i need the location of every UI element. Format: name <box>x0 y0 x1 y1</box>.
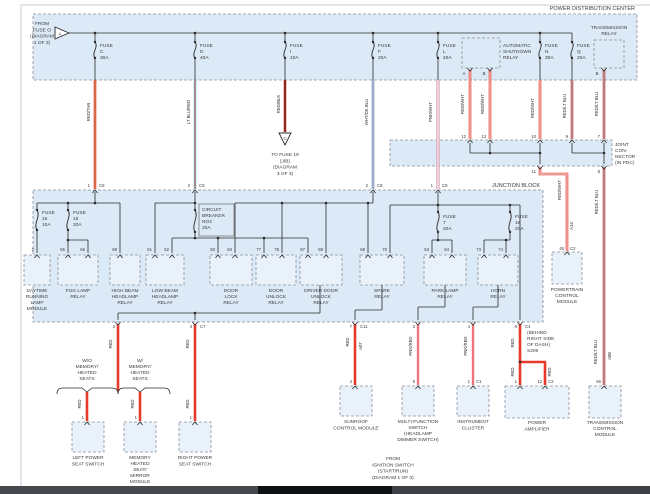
junction-dot <box>505 239 508 242</box>
junction-dot <box>194 237 197 240</box>
junction-dot <box>94 32 97 35</box>
ref-a-letter: A <box>59 32 62 37</box>
jb-exit-conn-c4: C4 <box>525 324 531 329</box>
door-lock-relay-box <box>210 255 252 285</box>
junction-block-title: JUNCTION BLOCK <box>492 183 540 189</box>
wire-color-label: RED <box>130 399 135 408</box>
transmission-control-module-box <box>589 386 621 418</box>
trans-relay-pin-b: B <box>596 71 599 76</box>
junction-dot <box>437 239 440 242</box>
wire-color-label: WHT/DK BLU <box>364 99 369 126</box>
wire-color-label: RED/LT BLU <box>593 340 598 364</box>
jb-conn-c8c: C8 <box>442 183 448 188</box>
memory-heated-seat-mirror-module-box <box>124 422 156 452</box>
transmission-relay-box <box>594 40 624 68</box>
sunroof-control-module-box <box>340 386 372 416</box>
pin-46-pcm: 46 <box>559 246 564 251</box>
pin-56-tcm: 56 <box>596 379 601 384</box>
wire-color-label: RED <box>185 399 190 408</box>
wire-color-label: PNK/WHT <box>428 102 433 122</box>
wire-color-label: RED/LT BLU <box>594 92 599 116</box>
junction-dot <box>539 152 542 155</box>
bottom-bar <box>0 486 258 494</box>
wiring-diagram: POWER DISTRIBUTION CENTERFROMFUSE O(DIAG… <box>0 0 650 494</box>
wire-color-label: LT BLU/RED <box>186 100 191 124</box>
horn-relay-box <box>478 255 518 285</box>
jb-conn-c8: C8 <box>99 183 105 188</box>
pin-69: 69 <box>360 247 365 252</box>
jc-pin-10: 10 <box>531 134 536 139</box>
automatic-shutdown-relay-box <box>462 38 500 68</box>
bottom-bar <box>258 486 392 494</box>
wire-color-label: A07 <box>358 342 363 350</box>
right-power-seat-switch-box <box>179 422 211 452</box>
junction-dot <box>194 312 197 315</box>
door-lock-relay-label: DOORLOCKRELAY <box>223 288 239 306</box>
jc-pin-13: 13 <box>481 134 486 139</box>
junction-dot <box>372 32 375 35</box>
pin-88: 88 <box>318 247 323 252</box>
conn-c1-ic: C1 <box>476 379 482 384</box>
junction-dot <box>437 32 440 35</box>
junction-dot <box>67 202 70 205</box>
pin-83: 83 <box>210 247 215 252</box>
junction-dot <box>217 237 220 240</box>
junction-dot <box>194 32 197 35</box>
pin-87: 87 <box>300 247 305 252</box>
wire-color-label: RED/BLK <box>276 95 281 114</box>
pin-78: 78 <box>274 247 279 252</box>
spare-relay-box <box>360 255 404 285</box>
wire-color-label: RED <box>108 339 113 348</box>
wire-color-label: A14 <box>569 222 574 230</box>
jb-conn-c8b: C8 <box>377 183 383 188</box>
pin-61: 61 <box>147 247 152 252</box>
bottom-bar <box>392 486 650 494</box>
junction-dot <box>367 202 370 205</box>
pin-53: 53 <box>424 247 429 252</box>
jc-pin-12: 12 <box>461 134 466 139</box>
door-unlock-relay-box <box>256 255 296 285</box>
wire-color-label: RED <box>185 339 190 348</box>
low-beam-headlamp-relay-box <box>146 255 184 285</box>
wire-color-label: A08 <box>607 352 612 360</box>
junction-dot <box>325 202 328 205</box>
driver-door-unlock-relay-box <box>300 255 342 285</box>
diagram-canvas: POWER DISTRIBUTION CENTERFROMFUSE O(DIAG… <box>0 0 650 494</box>
junction-dot <box>509 204 512 207</box>
junction-dot <box>539 32 542 35</box>
fog-lamp-relay-box <box>58 255 98 285</box>
pin-77: 77 <box>256 247 261 252</box>
pin-62: 62 <box>164 247 169 252</box>
pin-70: 70 <box>382 247 387 252</box>
wire-color-label: RED/WHT <box>480 94 485 114</box>
pin-73: 73 <box>476 247 481 252</box>
pin-68: 68 <box>112 247 117 252</box>
pdc-title: POWER DISTRIBUTION CENTER <box>550 6 635 12</box>
pin-84: 84 <box>227 247 232 252</box>
pin-65: 65 <box>60 247 65 252</box>
wire-color-label: RED <box>77 399 82 408</box>
junction-dot <box>94 202 97 205</box>
wire-color-label: RED <box>547 367 552 376</box>
junction-dot <box>67 239 70 242</box>
power-amplifier-box <box>505 386 569 418</box>
wire-color-label: PNK/RED <box>463 336 468 355</box>
asd-pin-b: B <box>483 71 486 76</box>
junction-dot <box>281 202 284 205</box>
ref-c-letter: C <box>283 136 286 141</box>
daytime-running-lamp-module-box <box>24 255 50 285</box>
jb-exit-conn-c7: C7 <box>200 324 206 329</box>
multi-function-switch-box <box>402 386 434 416</box>
pin-12-pa: 12 <box>537 379 542 384</box>
junction-dot <box>437 204 440 207</box>
junction-dot <box>603 152 606 155</box>
junction-dot <box>284 32 287 35</box>
high-beam-headlamp-relay-box <box>110 255 140 285</box>
conn-c2-pa: C2 <box>548 379 554 384</box>
junction-dot <box>263 237 266 240</box>
wire-color-label: RED/LT BLU <box>594 190 599 214</box>
wire-color-label: RED/WHT <box>557 180 562 200</box>
wire-color-label: PNK/RED <box>408 336 413 355</box>
junction-dot <box>519 361 522 364</box>
junction-dot <box>194 202 197 205</box>
wire-color-label: RED/WHT <box>460 94 465 114</box>
wire-color-label: RED <box>345 337 350 346</box>
pin-66: 66 <box>80 247 85 252</box>
jb-exit-conn-c11: C11 <box>360 324 368 329</box>
wire-color-label: RED <box>510 338 515 347</box>
jc-pin-11: 11 <box>532 169 537 174</box>
park-lamp-relay-box <box>424 255 466 285</box>
wire-color-label: RED/LT BLU <box>562 94 567 118</box>
conn-c2-pcm: C2 <box>570 246 576 251</box>
wire-color-label: RED <box>510 367 515 376</box>
powertrain-control-module-box <box>552 252 582 284</box>
pin-74: 74 <box>498 247 503 252</box>
junction-dot <box>489 152 492 155</box>
wire-color-label: RED/WHT <box>530 98 535 118</box>
wire-color-label: RED/TAN <box>86 103 91 122</box>
jb-conn-c9: C9 <box>199 183 205 188</box>
instrument-cluster-box <box>457 386 489 416</box>
asd-pin-a: A <box>463 71 466 76</box>
left-power-seat-switch-box <box>72 422 104 452</box>
pin-54: 54 <box>444 247 449 252</box>
